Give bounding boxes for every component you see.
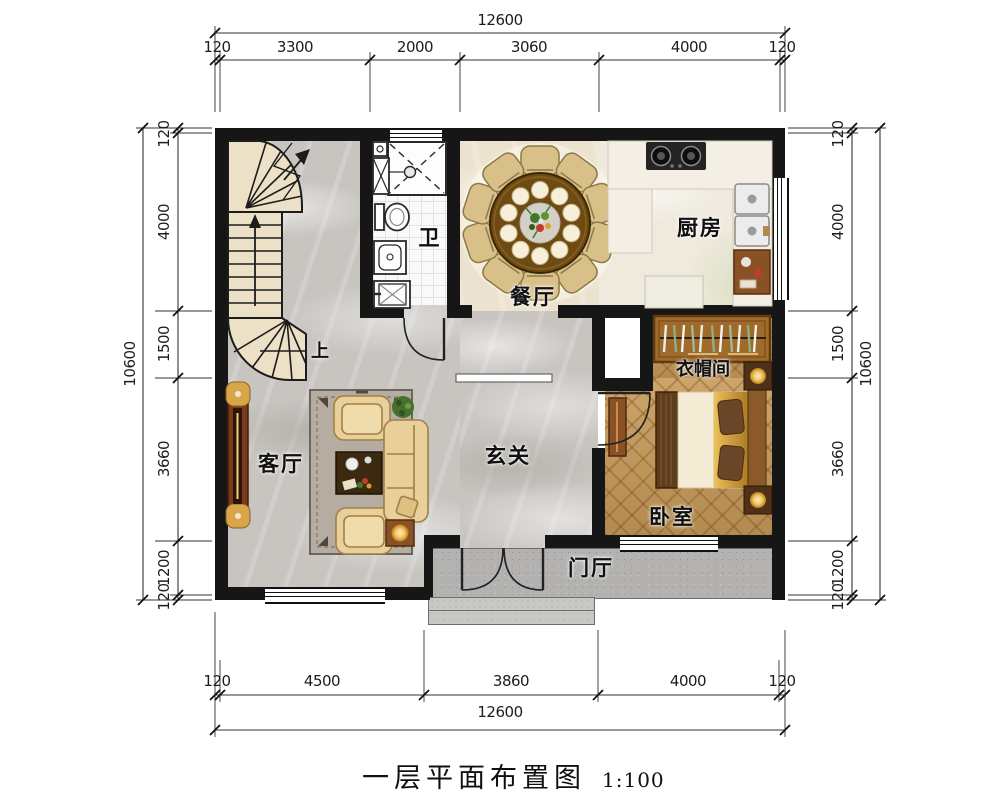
dining-table-set <box>460 143 620 303</box>
dim-bottom-seg2: 3860 <box>493 672 529 690</box>
dim-bottom-seg1: 4500 <box>304 672 340 690</box>
staircase <box>228 141 310 380</box>
dim-left-seg4: 1200 <box>155 550 173 586</box>
floor-lamp <box>392 525 409 542</box>
bed-runner <box>656 392 678 488</box>
dim-top-seg5: 120 <box>768 38 795 56</box>
counter-return <box>608 189 652 253</box>
bedroom-furniture <box>609 362 772 514</box>
kitchen-appliance <box>645 276 703 308</box>
toilet-bowl <box>385 204 409 231</box>
faucet <box>763 226 770 236</box>
dim-bottom-seg3: 4000 <box>670 672 706 690</box>
dim-top-total: 12600 <box>477 11 522 29</box>
label-bedroom: 卧室 <box>649 501 695 531</box>
dim-top-seg2: 2000 <box>397 38 433 56</box>
dim-left-seg1: 4000 <box>155 204 173 240</box>
label-living: 客厅 <box>258 448 304 478</box>
toilet-tank <box>375 204 384 230</box>
foyer-threshold <box>456 374 552 382</box>
label-bathroom: 卫 <box>419 222 442 252</box>
drawing-title-block: 一层平面布置图1:100 <box>362 756 696 800</box>
dim-left-seg3: 3660 <box>155 441 173 477</box>
label-dining: 餐厅 <box>510 281 556 311</box>
dim-top-seg4: 4000 <box>671 38 707 56</box>
bed-headboard <box>748 388 766 492</box>
dim-bottom-seg0: 120 <box>203 672 230 690</box>
dim-right-seg5: 120 <box>829 583 847 610</box>
floor-plan-page: 卫 餐厅 厨房 衣帽间 卧室 客厅 玄关 门厅 上 12600 120 3300… <box>0 0 1000 800</box>
dim-left-seg2: 1500 <box>155 326 173 362</box>
dim-top-seg0: 120 <box>203 38 230 56</box>
label-foyer: 玄关 <box>485 440 531 470</box>
drawing-title: 一层平面布置图 <box>362 763 586 794</box>
dim-right-seg1: 4000 <box>829 204 847 240</box>
dim-right-seg2: 1500 <box>829 326 847 362</box>
label-porch: 门厅 <box>568 552 614 582</box>
pillow-2 <box>717 445 744 481</box>
dim-bottom-total: 12600 <box>477 703 522 721</box>
bathroom-door <box>404 318 444 360</box>
label-stair-up: 上 <box>311 337 329 363</box>
dim-right-seg0: 120 <box>829 120 847 147</box>
drawing-scale: 1:100 <box>602 768 665 792</box>
dim-right-seg4: 1200 <box>829 550 847 586</box>
living-room-furniture <box>226 382 428 554</box>
dim-left-seg5: 120 <box>155 583 173 610</box>
dim-right-total: 10600 <box>857 341 875 386</box>
entrance-double-door <box>462 548 543 590</box>
label-cloakroom: 衣帽间 <box>676 355 730 381</box>
dim-top-seg3: 3060 <box>511 38 547 56</box>
dim-left-total: 10600 <box>121 341 139 386</box>
dim-top-seg1: 3300 <box>277 38 313 56</box>
dim-left-seg0: 120 <box>155 120 173 147</box>
dim-right-seg3: 3660 <box>829 441 847 477</box>
pillow-1 <box>717 399 744 435</box>
label-kitchen: 厨房 <box>677 212 723 242</box>
lamp-1 <box>750 368 766 384</box>
shower-head <box>405 167 416 178</box>
lamp-2 <box>750 492 766 508</box>
dim-bottom-seg4: 120 <box>768 672 795 690</box>
